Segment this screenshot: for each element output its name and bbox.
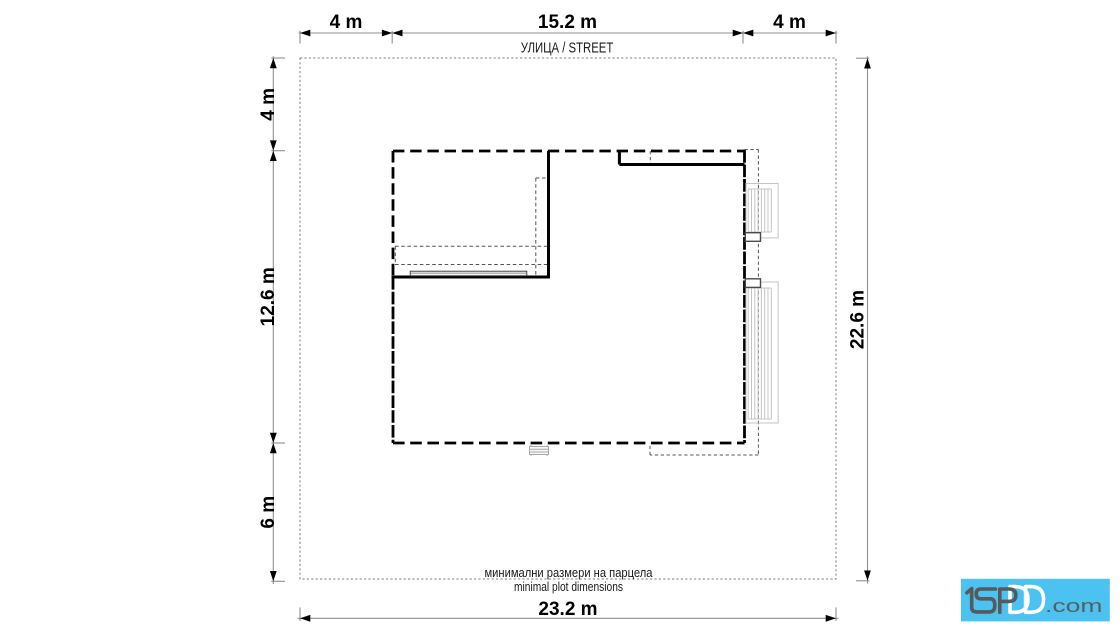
svg-text:6 m: 6 m [258,496,279,529]
svg-text:УЛИЦА / STREET: УЛИЦА / STREET [521,41,614,57]
svg-text:12.6 m: 12.6 m [258,267,279,326]
svg-text:15.2 m: 15.2 m [538,12,597,33]
svg-text:минимални размери на парцела: минимални размери на парцела [485,565,654,580]
svg-text:minimal plot dimensions: minimal plot dimensions [514,579,623,594]
svg-text:4 m: 4 m [773,12,806,33]
svg-text:.com: .com [1045,596,1103,616]
svg-text:22.6 m: 22.6 m [847,290,868,349]
svg-text:4 m: 4 m [258,88,279,121]
svg-text:23.2 m: 23.2 m [538,599,597,620]
svg-text:4 m: 4 m [330,12,363,33]
